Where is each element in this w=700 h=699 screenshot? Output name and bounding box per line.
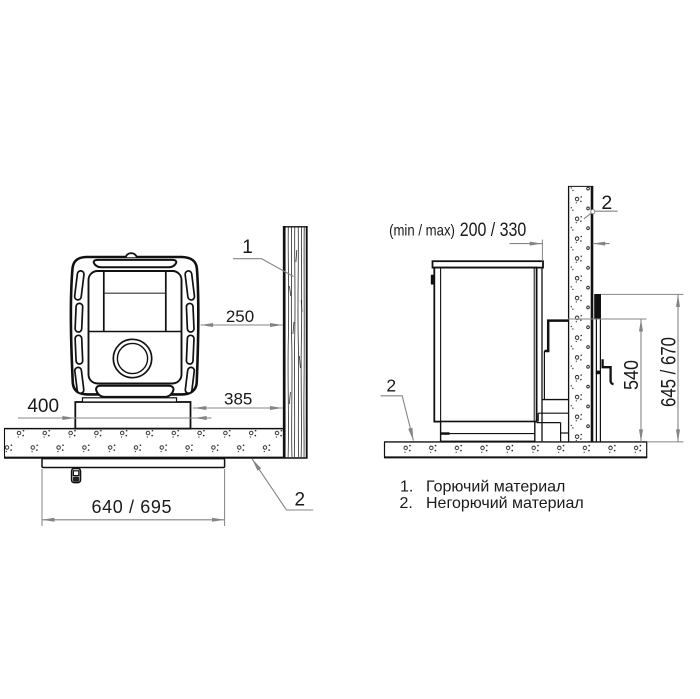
svg-text:385: 385 xyxy=(224,390,252,409)
svg-text:2.: 2. xyxy=(400,495,413,512)
svg-text:200 / 330: 200 / 330 xyxy=(460,219,527,241)
svg-text:250: 250 xyxy=(226,307,254,326)
svg-text:400: 400 xyxy=(27,396,59,417)
svg-text:640 / 695: 640 / 695 xyxy=(92,497,172,517)
svg-text:540: 540 xyxy=(621,360,643,390)
svg-text:2: 2 xyxy=(386,375,396,395)
svg-text:1: 1 xyxy=(242,237,253,258)
svg-text:(min / max): (min / max) xyxy=(389,223,455,240)
svg-text:645 / 670: 645 / 670 xyxy=(658,337,681,407)
svg-text:1.: 1. xyxy=(400,478,413,495)
svg-text:Горючий материал: Горючий материал xyxy=(426,478,565,495)
svg-text:2: 2 xyxy=(295,489,306,510)
svg-text:Негорючий материал: Негорючий материал xyxy=(426,495,584,512)
